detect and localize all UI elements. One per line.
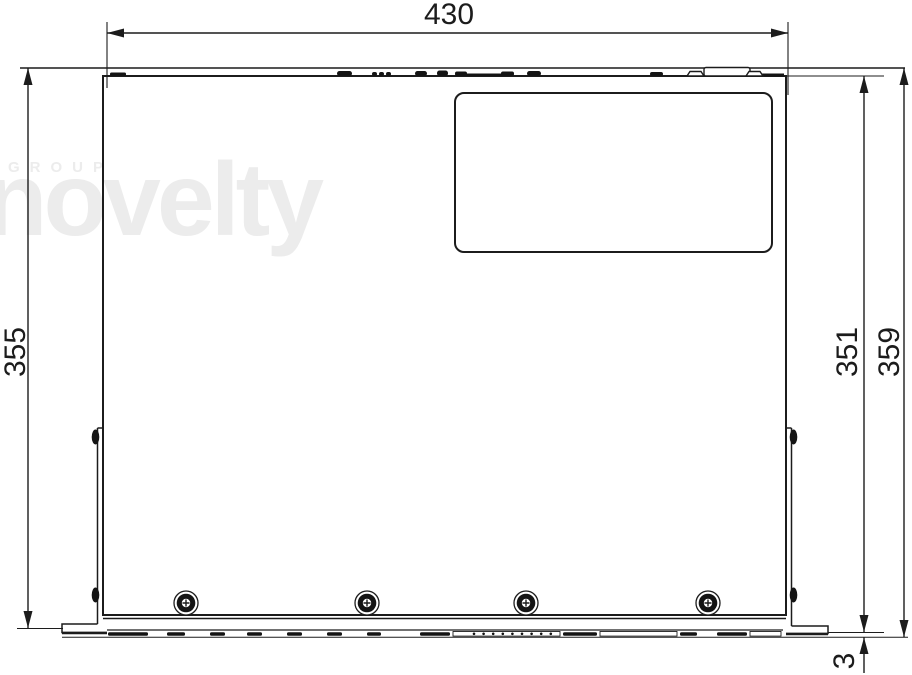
ear-foot <box>62 624 107 633</box>
arrowhead-down-icon <box>24 611 33 628</box>
front-panel-dot <box>473 633 476 636</box>
rear-bump <box>501 72 514 77</box>
rear-bump <box>650 72 663 76</box>
screw-icon <box>355 591 379 615</box>
dim-label-depth-right-inner: 351 <box>831 327 865 377</box>
mounting-screws <box>174 591 720 615</box>
front-panel-segment <box>453 632 560 637</box>
rear-bump <box>379 72 384 76</box>
dim-label-depth-left: 355 <box>0 327 33 377</box>
arrowhead-up-icon <box>24 68 33 85</box>
front-panel-dot <box>492 633 495 636</box>
front-panel-slot <box>247 632 262 636</box>
rear-tab-small <box>746 72 763 77</box>
screw-icon <box>696 591 720 615</box>
rack-ear-left <box>62 428 107 633</box>
front-panel-dot <box>502 633 505 636</box>
front-panel-slot <box>420 632 450 636</box>
ear-screw-bump <box>790 430 798 445</box>
front-panel-slot <box>367 632 381 636</box>
rear-bump <box>372 72 377 76</box>
rear-bump <box>437 71 448 77</box>
front-panel-segment <box>600 632 677 637</box>
front-panel-slot <box>167 632 185 636</box>
arrowhead-right-icon <box>771 29 788 38</box>
front-panel-slot <box>327 632 342 636</box>
arrowhead-up-icon <box>900 68 909 85</box>
ear-screw-bump <box>92 588 100 603</box>
front-panel-dot <box>521 633 524 636</box>
dim-width-430 <box>107 22 788 95</box>
dim-label-front-offset: 3 <box>828 653 862 670</box>
front-panel-dot <box>530 633 533 636</box>
front-panel-dot <box>550 633 553 636</box>
front-panel-edge <box>62 630 908 637</box>
rear-tab-large <box>704 68 750 77</box>
rear-strip <box>464 74 503 77</box>
front-panel-slot <box>287 632 302 636</box>
arrowhead-down-icon <box>860 615 869 632</box>
front-panel-dot <box>511 633 514 636</box>
front-panel-slot <box>563 632 597 636</box>
screw-icon <box>514 591 538 615</box>
rear-tab-small <box>687 72 704 77</box>
arrowhead-left-icon <box>107 29 124 38</box>
front-panel-slot <box>680 632 697 636</box>
ear-screw-bump <box>790 588 798 603</box>
front-panel-segment <box>750 632 781 637</box>
front-panel-slot <box>717 632 747 636</box>
ear-foot <box>786 626 828 634</box>
dim-label-depth-right-outer: 359 <box>873 327 907 377</box>
front-panel-dot <box>482 633 485 636</box>
screw-icon <box>174 591 198 615</box>
technical-drawing: GROUP novelty <box>0 0 912 675</box>
arrowhead-up-icon <box>860 76 869 93</box>
rear-bump <box>110 73 126 77</box>
dim-label-width: 430 <box>424 0 474 32</box>
label-plate <box>455 93 772 252</box>
ear-screw-bump <box>92 430 100 445</box>
arrowhead-up-icon <box>860 638 869 655</box>
rear-bump <box>337 71 352 76</box>
rear-bump <box>386 72 391 76</box>
arrowhead-down-icon <box>900 620 909 637</box>
front-panel-dot <box>540 633 543 636</box>
front-panel-slot <box>108 632 148 636</box>
drawing-linework <box>0 0 912 675</box>
front-panel-slot <box>210 632 225 636</box>
rear-bump <box>527 71 541 76</box>
rack-ear-right <box>786 428 828 634</box>
rear-bump <box>415 71 427 76</box>
